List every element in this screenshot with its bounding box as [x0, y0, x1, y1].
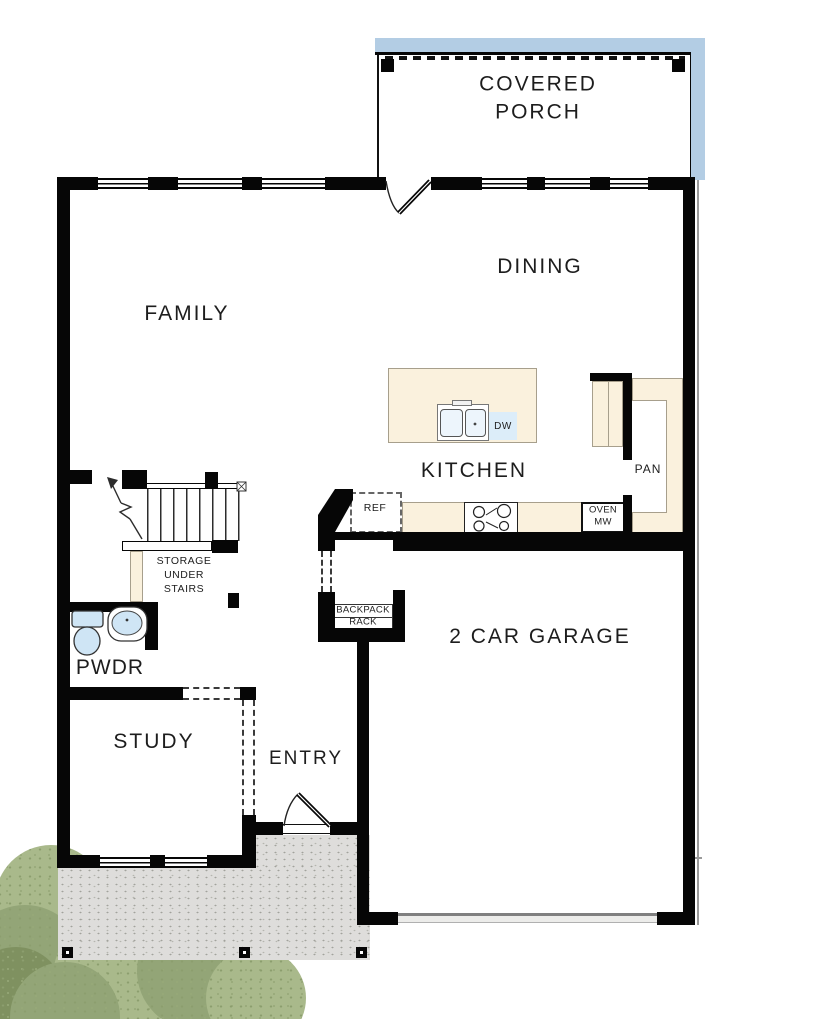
- label-line: OVEN: [589, 505, 617, 517]
- cooktop: [464, 502, 518, 533]
- wall: [431, 177, 482, 190]
- wall: [150, 855, 165, 868]
- wall: [207, 855, 250, 868]
- wall: [318, 592, 335, 628]
- cased-opening: [183, 687, 240, 700]
- wall: [623, 373, 632, 460]
- porch-roof-edge: [375, 38, 705, 52]
- room-label-dining: DINING: [497, 255, 583, 279]
- wall: [527, 177, 545, 190]
- cased-opening: [242, 700, 255, 815]
- porch-post-icon: [239, 947, 250, 958]
- label-backpack-rack: BACKPACK RACK: [336, 605, 389, 630]
- label-line: STAIRS: [157, 583, 212, 597]
- faucet-icon: [452, 400, 472, 406]
- wall: [623, 495, 632, 541]
- wall: [590, 177, 610, 190]
- room-label-garage: 2 CAR GARAGE: [449, 625, 631, 649]
- toilet-icon: [74, 627, 100, 655]
- room-label-family: FAMILY: [144, 302, 229, 326]
- sink-icon: [108, 607, 147, 641]
- porch-column-icon: [381, 59, 394, 72]
- wall: [57, 855, 100, 868]
- room-label-pantry: PAN: [635, 462, 662, 476]
- cased-opening: [321, 551, 332, 592]
- wall: [148, 177, 178, 190]
- wall: [393, 590, 405, 642]
- room-label-line: COVERED: [479, 71, 597, 99]
- window-icon: [165, 857, 207, 868]
- label-oven-microwave: OVEN MW: [589, 505, 617, 530]
- wall: [325, 177, 386, 190]
- porch-column-icon: [672, 59, 685, 72]
- wall: [57, 177, 70, 868]
- wall: [393, 532, 695, 551]
- wall: [212, 540, 238, 553]
- wall: [318, 628, 405, 642]
- wall: [122, 470, 147, 488]
- porch-roof-edge: [691, 38, 705, 180]
- wall: [145, 612, 158, 650]
- door-leaf-icon: [399, 181, 430, 213]
- wall: [240, 687, 256, 700]
- stair-landing: [122, 541, 212, 551]
- garage-door-icon: [398, 913, 657, 923]
- wall: [330, 822, 358, 835]
- room-label-study: STUDY: [113, 730, 194, 754]
- door-threshold: [283, 824, 330, 834]
- label-line: MW: [589, 517, 617, 529]
- door-leaf-icon: [298, 794, 330, 826]
- sink-drain-icon: [126, 619, 129, 622]
- wall: [250, 822, 283, 835]
- window-icon: [262, 178, 325, 189]
- window-icon: [100, 857, 150, 868]
- door-swing-icon: [284, 794, 298, 826]
- door-leaf-icon: [298, 794, 330, 826]
- door-swing-icon: [386, 181, 399, 213]
- room-label-kitchen: KITCHEN: [421, 459, 527, 483]
- wall: [242, 177, 262, 190]
- wall: [318, 532, 335, 551]
- front-porch-slab: [253, 835, 370, 869]
- wall: [335, 532, 393, 540]
- wall: [57, 470, 92, 484]
- front-porch-slab: [58, 867, 370, 960]
- wall: [683, 177, 695, 925]
- storage-wall-strip: [130, 551, 143, 602]
- window-icon: [178, 178, 242, 189]
- wall: [318, 489, 353, 532]
- stair-arrow-break: [120, 503, 131, 519]
- label-line: STORAGE: [157, 555, 212, 569]
- wall: [357, 642, 369, 925]
- wall: [590, 373, 623, 381]
- dishwasher-label: DW: [494, 421, 512, 432]
- room-label-covered-porch: COVERED PORCH: [479, 71, 597, 128]
- porch-post-icon: [356, 947, 367, 958]
- stair-arrow-head: [107, 477, 118, 489]
- wall: [228, 593, 239, 608]
- toilet-icon: [72, 611, 103, 627]
- wall: [57, 602, 158, 612]
- roof-line: [697, 180, 699, 925]
- label-refrigerator: REF: [364, 502, 387, 516]
- stair-arrow-icon: [130, 519, 142, 539]
- pantry-cabinet: [592, 381, 623, 447]
- label-line: BACKPACK: [336, 605, 389, 617]
- window-icon: [98, 178, 148, 189]
- label-line: RACK: [336, 617, 389, 629]
- stair-arrow-icon: [111, 482, 121, 503]
- sink-basin-icon: [465, 409, 486, 437]
- door-leaf-icon: [399, 181, 430, 213]
- label-storage-under-stairs: STORAGE UNDER STAIRS: [157, 555, 212, 597]
- wall: [57, 687, 183, 700]
- floor-plan: DW: [0, 0, 814, 1019]
- window-icon: [482, 178, 527, 189]
- dishwasher: DW: [489, 412, 517, 440]
- window-icon: [545, 178, 590, 189]
- window-icon: [610, 178, 648, 189]
- room-label-powder: PWDR: [76, 656, 144, 680]
- room-label-entry: ENTRY: [269, 748, 343, 770]
- wall: [657, 912, 695, 925]
- porch-post-icon: [62, 947, 73, 958]
- label-line: UNDER: [157, 569, 212, 583]
- porch-screen-dashes: [385, 56, 685, 60]
- sink-icon: [112, 611, 142, 635]
- room-label-line: PORCH: [479, 99, 597, 127]
- sink-basin-icon: [440, 409, 463, 437]
- pantry-floor: [632, 400, 667, 513]
- stairs-icon: [147, 489, 240, 541]
- wall: [357, 912, 398, 925]
- wall: [205, 472, 218, 488]
